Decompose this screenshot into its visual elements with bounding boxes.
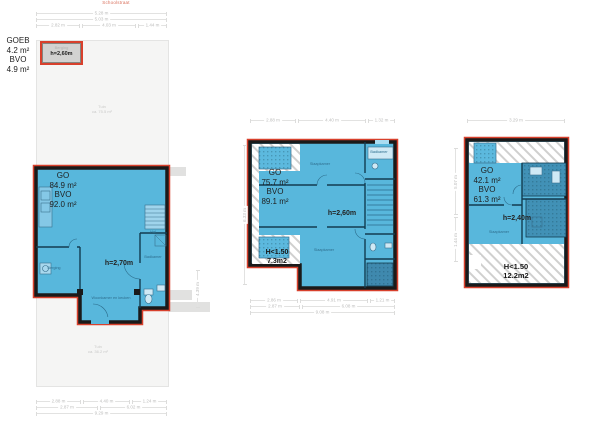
dimension-label: 2.87 m <box>266 305 284 310</box>
bvo-value: 61.3 m² <box>465 195 509 205</box>
dimension-line: 6.02 m <box>100 407 167 408</box>
dimension-line: 5.28 m <box>36 13 167 14</box>
dimension-label: 1.32 m <box>373 119 391 124</box>
dimension-line: 4.91 m <box>300 300 368 301</box>
dimension-line: 1.44 m <box>138 25 167 26</box>
scale-note: Schoolstraat <box>82 0 150 5</box>
dimension-line: 2.87 m <box>36 407 98 408</box>
room-label: Berging <box>40 266 68 270</box>
dimension-line: 4.40 m <box>83 401 130 402</box>
go-value: 75.7 m² <box>250 178 300 188</box>
dimension-line: 2.82 m <box>36 25 80 26</box>
dimension-label: 2.88 m <box>264 119 282 124</box>
ground-floor-area-label: GO 84.9 m² BVO 92.0 m² <box>38 171 88 209</box>
ceiling-height-label: h=2,60m <box>316 210 368 217</box>
floorplan-sheet: Schoolstraat 5.28 m 5.03 m 2.82 m 4.03 m… <box>0 0 600 424</box>
dimension-label: 9.29 m <box>93 412 111 417</box>
dimension-line: 2.88 m <box>250 120 296 121</box>
dimension-label: 1.24 m <box>141 400 159 405</box>
low-height-label: H<1.50 12.2m2 <box>492 262 540 280</box>
go-label: GO <box>250 168 300 178</box>
shed-area-label: GOEB 4.2 m² BVO 4.9 m² <box>0 36 36 74</box>
go-label: GO <box>465 166 509 176</box>
dimension-line: 2.86 m <box>250 300 298 301</box>
bvo-label: BVO <box>465 185 509 195</box>
dimension-label: 6.33 m <box>243 206 248 224</box>
dimension-line: 5.03 m <box>36 19 167 20</box>
dimension-label: 9.08 m <box>314 311 332 316</box>
dimension-line: 4.39 m <box>197 270 198 308</box>
dimension-line: 1.24 m <box>132 401 167 402</box>
room-label: Badkamer <box>364 150 394 154</box>
room-label: Slaapkamer <box>292 162 348 166</box>
first-floor-area-label: GO 75.7 m² BVO 89.1 m² <box>250 168 300 206</box>
dimension-label: 5.28 m <box>93 12 111 17</box>
low-height-line2: 12.2m2 <box>492 271 540 280</box>
dimension-label: 2.88 m <box>50 400 68 405</box>
room-label: Slaapkamer <box>296 248 352 252</box>
low-height-label: H<1.50 7.3m2 <box>258 249 296 266</box>
dimension-label: 4.91 m <box>325 299 343 304</box>
dimension-label: 5.07 m <box>454 173 459 191</box>
room-label: Badkamer <box>140 255 166 259</box>
low-height-line2: 7.3m2 <box>258 258 296 267</box>
dimension-line: 9.29 m <box>36 413 167 414</box>
dimension-line: 2.87 m <box>250 306 300 307</box>
shed-height-label: h=2,60m <box>42 52 81 58</box>
bvo-label: BVO <box>0 55 36 65</box>
dimension-label: 4.03 m <box>100 24 118 29</box>
dimension-label: 4.40 m <box>323 119 341 124</box>
dimension-line: 1.21 m <box>370 300 395 301</box>
bvo-value: 92.0 m² <box>38 200 88 210</box>
dimension-line: 1.44 m <box>455 217 456 262</box>
garden-area: ca. 36.2 m² <box>68 349 128 354</box>
dimension-line: 5.07 m <box>455 148 456 215</box>
shed-room-label: Berging <box>42 46 81 50</box>
low-height-line1: H<1.50 <box>492 262 540 271</box>
dimension-line: 2.88 m <box>36 401 81 402</box>
dimension-line: 9.08 m <box>250 312 395 313</box>
go-value: 42.1 m² <box>465 176 509 186</box>
ceiling-height-label: h=2,40m <box>494 215 540 222</box>
dimension-line: 6.33 m <box>244 145 245 285</box>
dimension-label: 6.08 m <box>340 305 358 310</box>
room-label: Hal <box>140 230 166 234</box>
neighbor-outline <box>168 167 186 176</box>
dimension-line: 6.08 m <box>302 306 395 307</box>
dimension-label: 2.82 m <box>49 24 67 29</box>
bvo-value: 4.9 m² <box>0 65 36 75</box>
neighbor-outline <box>168 290 192 300</box>
shed-outline: Berging h=2,60m <box>40 41 83 65</box>
bvo-value: 89.1 m² <box>250 197 300 207</box>
dimension-line: 4.03 m <box>82 25 136 26</box>
go-label: GO <box>38 171 88 181</box>
go-value: 84.9 m² <box>38 181 88 191</box>
bvo-label: BVO <box>38 190 88 200</box>
garden-label: Tuin ca. 75.5 m² <box>72 104 132 114</box>
bvo-label: BVO <box>250 187 300 197</box>
dimension-label: 4.40 m <box>98 400 116 405</box>
garden-label: Tuin ca. 36.2 m² <box>68 344 128 354</box>
dimension-label: 1.44 m <box>144 24 162 29</box>
ceiling-height-label: h=2,70m <box>94 260 144 267</box>
dimension-label: 6.02 m <box>125 406 143 411</box>
room-label: Slaapkamer <box>474 230 524 234</box>
neighbor-outline <box>168 302 210 312</box>
dimension-label: 1.44 m <box>454 231 459 249</box>
go-value: 4.2 m² <box>0 46 36 56</box>
go-label: GOEB <box>0 36 36 46</box>
dimension-line: 3.29 m <box>467 120 565 121</box>
dimension-line: 4.40 m <box>298 120 366 121</box>
dimension-label: 5.03 m <box>93 18 111 23</box>
dimension-label: 1.21 m <box>374 299 392 304</box>
dimension-line: 1.32 m <box>368 120 395 121</box>
second-floor-area-label: GO 42.1 m² BVO 61.3 m² <box>465 166 509 204</box>
dimension-label: 4.39 m <box>196 280 201 298</box>
garden-area: ca. 75.5 m² <box>72 109 132 114</box>
room-label: Woonkamer en keuken <box>88 296 134 300</box>
dimension-label: 2.86 m <box>265 299 283 304</box>
dimension-label: 3.29 m <box>507 119 525 124</box>
dimension-label: 2.87 m <box>58 406 76 411</box>
low-height-line1: H<1.50 <box>258 249 296 258</box>
